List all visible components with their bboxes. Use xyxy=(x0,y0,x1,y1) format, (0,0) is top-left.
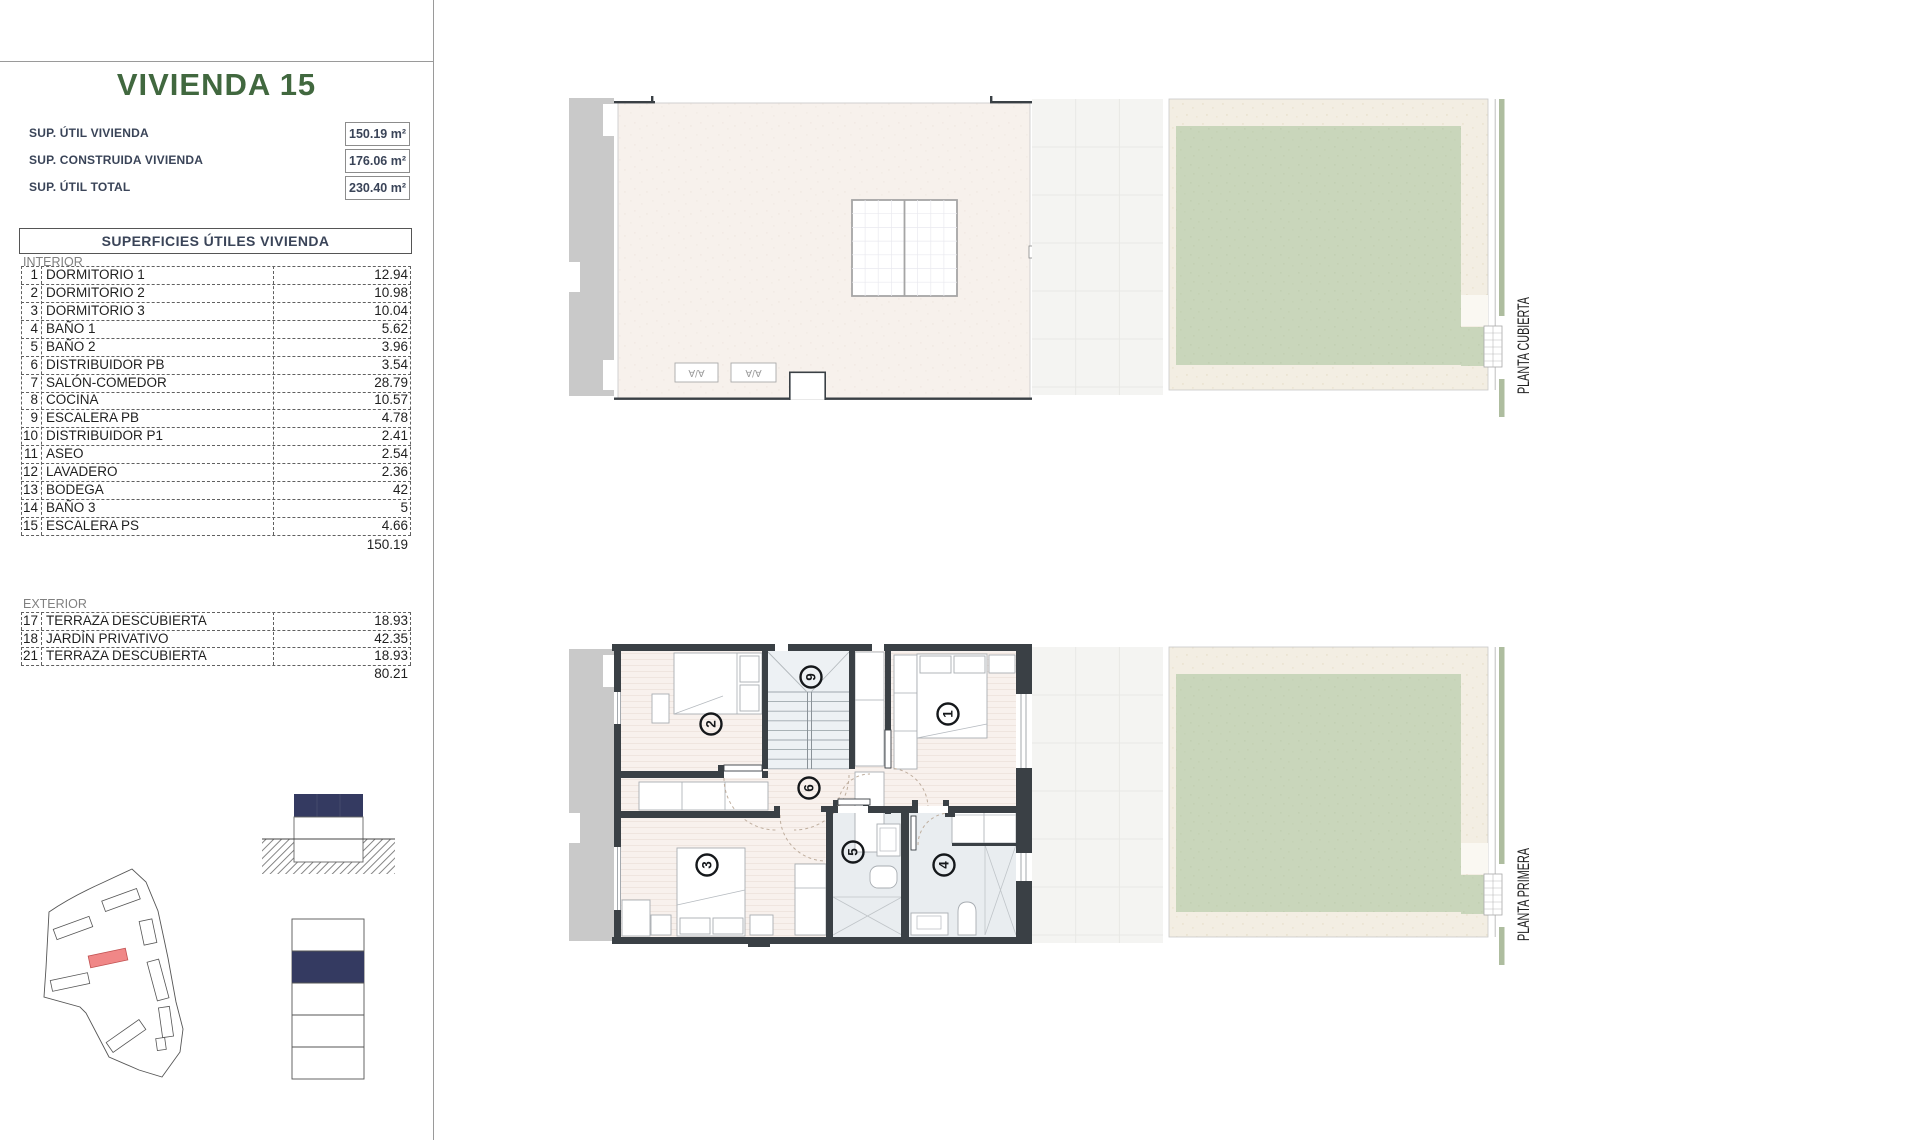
svg-text:2: 2 xyxy=(704,720,719,728)
svg-text:PLANTA CUBIERTA: PLANTA CUBIERTA xyxy=(1514,297,1533,394)
svg-text:5: 5 xyxy=(846,848,861,856)
svg-text:6: 6 xyxy=(802,784,817,792)
svg-text:A/A: A/A xyxy=(745,367,761,378)
svg-text:9: 9 xyxy=(804,673,819,681)
svg-text:3: 3 xyxy=(700,861,715,869)
svg-text:1: 1 xyxy=(941,710,956,718)
svg-text:PLANTA PRIMERA: PLANTA PRIMERA xyxy=(1514,848,1533,941)
svg-text:4: 4 xyxy=(937,861,952,869)
svg-text:A/A: A/A xyxy=(688,367,704,378)
